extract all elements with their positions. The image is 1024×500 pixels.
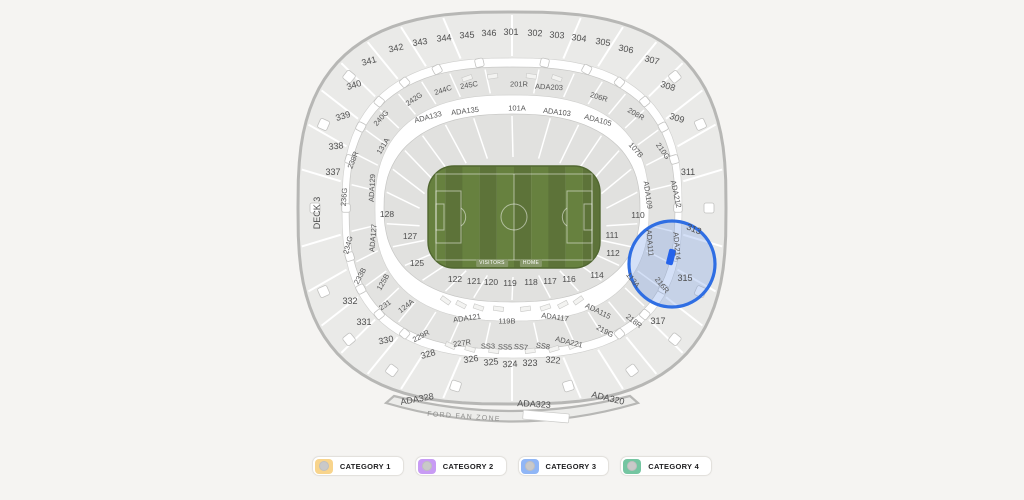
- legend-category-1-label: CATEGORY 1: [340, 462, 391, 471]
- legend-category-2-label: CATEGORY 2: [443, 462, 494, 471]
- section-112[interactable]: 112: [606, 248, 620, 258]
- category-1-dot: [319, 461, 329, 471]
- section-128[interactable]: 128: [380, 209, 394, 219]
- section-338[interactable]: 338: [328, 140, 344, 152]
- section-236G[interactable]: 236G: [339, 187, 350, 206]
- home-bench-label: HOME: [520, 259, 542, 267]
- section-110[interactable]: 110: [631, 210, 645, 220]
- section-337[interactable]: 337: [325, 167, 340, 177]
- section-120[interactable]: 120: [484, 277, 498, 287]
- section-ADA203[interactable]: ADA203: [535, 82, 563, 92]
- category-2-swatch: [418, 459, 436, 474]
- section-101A[interactable]: 101A: [508, 104, 526, 113]
- section-118[interactable]: 118: [524, 277, 538, 287]
- section-311[interactable]: 311: [681, 167, 695, 177]
- section-345[interactable]: 345: [459, 30, 475, 41]
- section-ADA129[interactable]: ADA129: [367, 174, 377, 202]
- section-332[interactable]: 332: [342, 296, 357, 306]
- category-1-swatch: [315, 459, 333, 474]
- section-302[interactable]: 302: [527, 28, 542, 39]
- legend-category-3-label: CATEGORY 3: [546, 462, 597, 471]
- section-119[interactable]: 119: [503, 278, 517, 288]
- section-305[interactable]: 305: [595, 36, 611, 48]
- section-127[interactable]: 127: [403, 231, 417, 241]
- section-117[interactable]: 117: [543, 276, 557, 286]
- category-3-dot: [525, 461, 535, 471]
- section-125[interactable]: 125: [410, 258, 424, 268]
- section-114[interactable]: 114: [590, 270, 604, 280]
- section-121[interactable]: 121: [467, 276, 481, 286]
- legend-category-3[interactable]: CATEGORY 3: [518, 456, 610, 476]
- section-317[interactable]: 317: [650, 316, 665, 326]
- section-116[interactable]: 116: [562, 274, 576, 284]
- section-331[interactable]: 331: [356, 317, 371, 327]
- soccer-field: [428, 166, 600, 268]
- section-303[interactable]: 303: [549, 29, 565, 40]
- section-325[interactable]: 325: [483, 356, 499, 368]
- section-SS5[interactable]: SS5: [498, 342, 512, 351]
- section-122[interactable]: 122: [448, 274, 462, 284]
- legend-category-4-label: CATEGORY 4: [648, 462, 699, 471]
- section-119B[interactable]: 119B: [499, 317, 516, 326]
- section-ADA323[interactable]: ADA323: [517, 398, 551, 410]
- section-346[interactable]: 346: [481, 28, 496, 38]
- section-324[interactable]: 324: [502, 359, 518, 370]
- visitors-bench-label: VISITORS: [476, 259, 508, 267]
- section-344[interactable]: 344: [436, 32, 452, 44]
- section-SS3[interactable]: SS3: [481, 342, 495, 351]
- seatmap-page: 3423433443453463013023033043053063413073…: [0, 0, 1024, 500]
- section-SS7[interactable]: SS7: [514, 342, 529, 352]
- category-3-swatch: [521, 459, 539, 474]
- section-322[interactable]: 322: [545, 354, 561, 365]
- section-SS8[interactable]: SS8: [535, 341, 550, 352]
- section-315[interactable]: 315: [677, 273, 692, 283]
- stadium-svg: [0, 0, 1024, 500]
- legend-category-4[interactable]: CATEGORY 4: [620, 456, 712, 476]
- category-4-swatch: [623, 459, 641, 474]
- section-301[interactable]: 301: [503, 27, 518, 37]
- deck-3-label: DECK 3: [312, 197, 322, 230]
- category-2-dot: [422, 461, 432, 471]
- section-304[interactable]: 304: [571, 32, 587, 44]
- legend-category-2[interactable]: CATEGORY 2: [415, 456, 507, 476]
- section-201R[interactable]: 201R: [510, 80, 528, 89]
- category-legend: CATEGORY 1 CATEGORY 2 CATEGORY 3 CATEGOR…: [0, 456, 1024, 476]
- category-4-dot: [627, 461, 637, 471]
- section-111[interactable]: 111: [606, 230, 619, 240]
- legend-category-1[interactable]: CATEGORY 1: [312, 456, 404, 476]
- section-323[interactable]: 323: [522, 358, 537, 368]
